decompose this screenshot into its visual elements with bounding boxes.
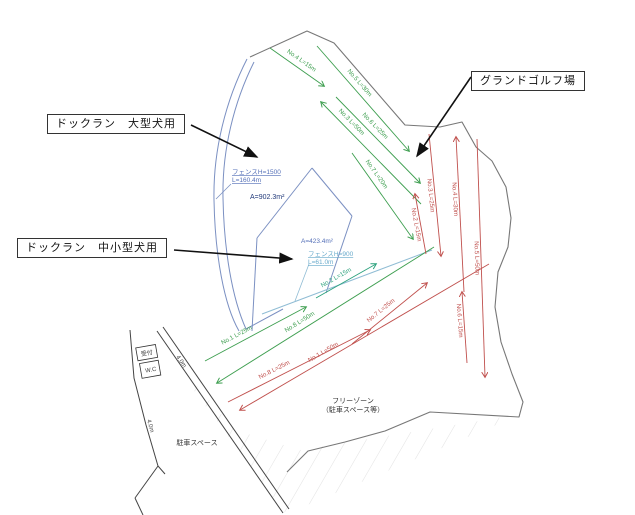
green-course-arrow: [205, 307, 306, 361]
callout-dogrun-small-text: ドックラン 中小型犬用: [26, 242, 158, 254]
dogrun-divider-1: [257, 168, 312, 238]
dogrun-divider-2: [252, 238, 257, 331]
callout-dogrun-large: ドックラン 大型犬用: [47, 114, 185, 134]
red-course-arrow-label: No.4 L=30m: [450, 182, 459, 216]
dogrun-fence-outer: [214, 59, 247, 331]
golf-course-arrows: No.1 L=25mNo.2 L=15mNo.3 L=50mNo.4 L=15m…: [205, 46, 489, 410]
callout-dogrun-small: ドックラン 中小型犬用: [17, 238, 167, 258]
fence-small-label-2: L=61.0m: [308, 259, 333, 266]
fence-small-label-1: フェンスH=900: [308, 250, 354, 258]
free-zone-label-2: （駐車スペース等）: [322, 405, 384, 414]
dogrun-divider-3: [312, 168, 352, 216]
callout-ground-golf: グランドゴルフ場: [471, 71, 585, 91]
area-large-label: A=902.3m²: [250, 194, 285, 201]
parking-edge-2: [135, 498, 143, 515]
road-edge-right: [163, 327, 289, 509]
dogrun-bottom-edge: [246, 309, 283, 329]
site-plan: フェンスH=1500 L=160.4m フェンスH=900 L=61.0m A=…: [0, 0, 635, 515]
leader-dogrun-small: [174, 250, 292, 259]
red-course-arrow-label: No.5 L=50m: [472, 241, 480, 275]
fence-small-line: [262, 250, 432, 314]
callout-ground-golf-text: グランドゴルフ場: [480, 75, 576, 87]
area-small-label: A=423.4m²: [301, 238, 334, 245]
red-course-arrow: [352, 283, 427, 344]
fence-large-label-1: フェンスH=1500: [232, 168, 281, 176]
leader-ground-golf: [417, 77, 471, 156]
parking-edge-1: [135, 466, 158, 498]
site-boundary: [250, 31, 523, 472]
road-width-label-a: 4.0m: [174, 355, 187, 369]
callout-dogrun-large-text: ドックラン 大型犬用: [56, 118, 176, 130]
red-course-arrow-label: No.6 L=15m: [455, 304, 464, 338]
parking-label: 駐車スペース: [176, 438, 217, 447]
red-course-arrow: [228, 330, 370, 402]
fence-large-label-2: L=160.4m: [232, 177, 261, 184]
red-course-arrow-label: No.8 L=25m: [258, 359, 291, 381]
green-course-arrow: [317, 46, 409, 151]
red-course-arrow: [240, 264, 489, 410]
facility-huts: 受付 W.C: [136, 344, 161, 378]
leader-dogrun-large: [191, 125, 257, 157]
red-course-arrow-label: No.1 L=50m: [307, 341, 340, 364]
free-zone-label-1: フリーゾーン: [332, 397, 374, 405]
fence-small-leader: [295, 264, 309, 301]
